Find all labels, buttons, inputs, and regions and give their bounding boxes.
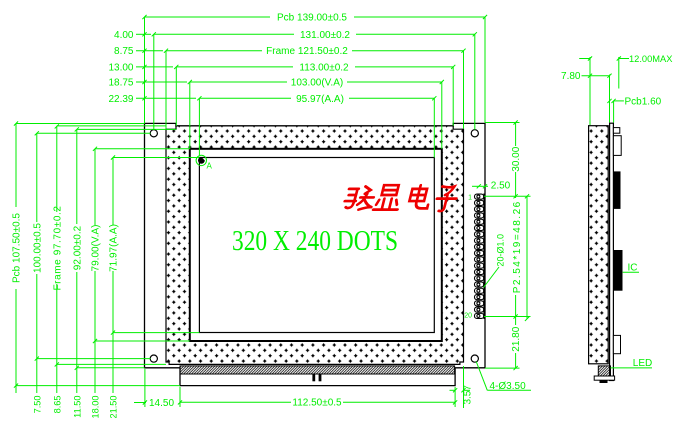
svg-text:LED: LED	[633, 358, 652, 369]
svg-text:92.00±0.2: 92.00±0.2	[72, 225, 83, 270]
svg-text:320 X 240 DOTS: 320 X 240 DOTS	[232, 226, 398, 257]
svg-text:Pcb1.60: Pcb1.60	[625, 96, 662, 107]
svg-text:113.00±0.2: 113.00±0.2	[299, 62, 349, 73]
svg-text:79.00(V.A): 79.00(V.A)	[91, 225, 102, 272]
svg-text:18.00: 18.00	[91, 396, 101, 419]
svg-text:Pcb 139.00±0.5: Pcb 139.00±0.5	[277, 13, 347, 24]
svg-text:13.00: 13.00	[108, 62, 133, 73]
svg-text:2.50: 2.50	[491, 181, 511, 192]
svg-text:7.80: 7.80	[561, 71, 581, 82]
svg-text:21.50: 21.50	[109, 396, 119, 419]
svg-text:12.00MAX: 12.00MAX	[629, 54, 672, 64]
svg-text:1: 1	[468, 195, 472, 202]
svg-text:7.50: 7.50	[32, 396, 42, 414]
svg-text:Frame 121.50±0.2: Frame 121.50±0.2	[266, 46, 348, 57]
svg-text:Pcb 107.50±0.5: Pcb 107.50±0.5	[12, 213, 23, 283]
svg-text:A: A	[207, 162, 213, 171]
svg-text:103.00(V.A): 103.00(V.A)	[291, 78, 343, 89]
svg-text:18.75: 18.75	[108, 78, 133, 89]
svg-text:Frame 97.70±0.2: Frame 97.70±0.2	[52, 205, 63, 290]
svg-text:71.97(A.A): 71.97(A.A)	[109, 224, 120, 272]
svg-text:4.00: 4.00	[114, 30, 134, 41]
svg-text:14.50: 14.50	[149, 398, 174, 409]
svg-text:11.50: 11.50	[72, 396, 82, 418]
svg-text:20: 20	[464, 313, 472, 320]
svg-text:8.75: 8.75	[114, 46, 134, 57]
svg-text:112.50±0.5: 112.50±0.5	[292, 398, 342, 409]
svg-text:P2.54*19=48.26: P2.54*19=48.26	[512, 200, 523, 293]
svg-text:131.00±0.2: 131.00±0.2	[300, 30, 350, 41]
svg-text:100.00±0.5: 100.00±0.5	[32, 223, 43, 273]
svg-text:21.80: 21.80	[511, 326, 522, 351]
svg-text:95.97(A.A): 95.97(A.A)	[296, 94, 344, 105]
svg-text:IC: IC	[628, 262, 638, 273]
svg-text:8.65: 8.65	[52, 396, 62, 414]
svg-text:3.57: 3.57	[463, 385, 474, 405]
svg-text:20-Ø1.0: 20-Ø1.0	[496, 234, 506, 267]
svg-text:22.39: 22.39	[108, 94, 133, 105]
svg-text:30.00: 30.00	[511, 146, 522, 171]
svg-text:4-Ø3.50: 4-Ø3.50	[490, 381, 527, 392]
